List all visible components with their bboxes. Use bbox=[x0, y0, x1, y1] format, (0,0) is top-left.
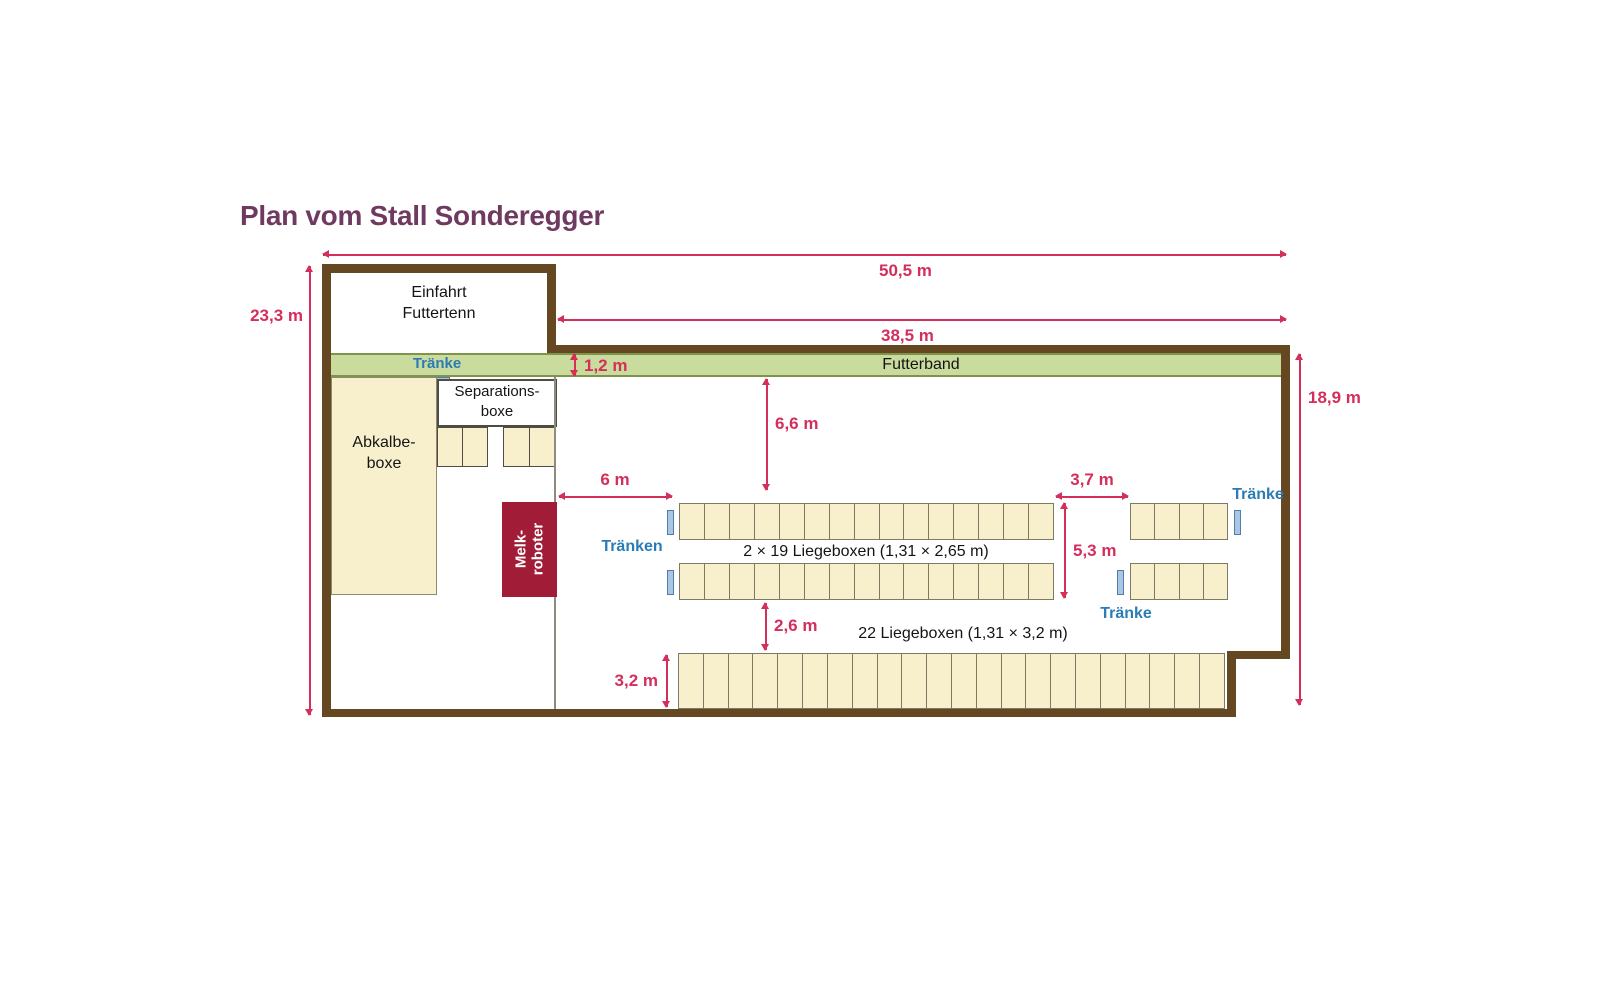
dim-label-left-gap: 6 m bbox=[565, 470, 665, 490]
liegeboxen-row-lower-right bbox=[1130, 563, 1228, 600]
melkroboter-label: Melk- roboter bbox=[503, 502, 557, 597]
dim-arrow-left-height bbox=[309, 266, 311, 715]
liegebox-cell bbox=[1029, 504, 1053, 539]
separationsboxe-label-line1: Separations- bbox=[437, 382, 557, 402]
liegebox-cell bbox=[1051, 654, 1076, 708]
liegebox-cell bbox=[1200, 654, 1224, 708]
liegebox-cell bbox=[1026, 654, 1051, 708]
melkroboter-room: Melk- roboter bbox=[502, 502, 557, 597]
wall-hall-top bbox=[547, 345, 1290, 353]
floor-plan: Plan vom Stall Sonderegger Futterband Tr… bbox=[0, 0, 1600, 984]
dim-label-row-gap: 5,3 m bbox=[1073, 541, 1116, 561]
liegebox-cell bbox=[805, 504, 830, 539]
liegebox-cell bbox=[753, 654, 778, 708]
page-title: Plan vom Stall Sonderegger bbox=[240, 200, 604, 232]
liegebox-cell bbox=[1204, 564, 1227, 599]
traenke-right-top-label: Tränke bbox=[1228, 486, 1288, 504]
liegebox-cell bbox=[803, 654, 828, 708]
liegebox-cell bbox=[1004, 564, 1029, 599]
dim-arrow-right-height bbox=[1299, 354, 1301, 705]
dim-label-lower-gap: 2,6 m bbox=[774, 616, 817, 636]
dim-arrow-left-gap bbox=[559, 496, 672, 498]
liegebox-cell bbox=[805, 564, 830, 599]
einfahrt-label-line1: Einfahrt bbox=[331, 282, 547, 303]
liegebox-cell bbox=[1029, 564, 1053, 599]
liegebox-cell bbox=[1101, 654, 1126, 708]
liegebox-cell bbox=[952, 654, 977, 708]
liegebox-cell bbox=[1131, 564, 1155, 599]
dim-arrow-band-height bbox=[574, 354, 576, 376]
traenke-right-bottom-label: Tränke bbox=[1096, 605, 1156, 623]
abkalbeboxe-label-line2: boxe bbox=[331, 453, 437, 474]
liegeboxen-row-upper-right bbox=[1130, 503, 1228, 540]
wall-left bbox=[322, 264, 331, 717]
liegebox-cell bbox=[778, 654, 803, 708]
liegebox-cell bbox=[705, 564, 730, 599]
liegebox-cell bbox=[1004, 504, 1029, 539]
wall-einfahrt-top bbox=[322, 264, 556, 273]
liegebox-cell bbox=[954, 504, 979, 539]
dim-label-bottom-depth: 3,2 m bbox=[558, 671, 658, 691]
dim-arrow-right-gap bbox=[1056, 496, 1128, 498]
liegebox-cell bbox=[954, 564, 979, 599]
liegebox-cell bbox=[1131, 504, 1155, 539]
dim-label-left-height: 23,3 m bbox=[203, 306, 303, 326]
liegebox-cell bbox=[680, 504, 705, 539]
liegebox-cell bbox=[830, 564, 855, 599]
einfahrt-label-line2: Futtertenn bbox=[331, 303, 547, 324]
liegebox-cell bbox=[828, 654, 853, 708]
liegebox-cell bbox=[1155, 564, 1179, 599]
wall-bottom bbox=[322, 709, 1236, 717]
wall-lower-right bbox=[1227, 651, 1236, 717]
liegebox-cell bbox=[1150, 654, 1175, 708]
liegebox-cell bbox=[977, 654, 1002, 708]
futterband-strip bbox=[331, 353, 1281, 377]
liegebox-cell bbox=[755, 564, 780, 599]
liegebox-cell bbox=[880, 504, 905, 539]
upper-rows-label: 2 × 19 Liegeboxen (1,31 × 2,65 m) bbox=[716, 543, 1016, 561]
abkalbeboxe-label: Abkalbe- boxe bbox=[331, 432, 437, 474]
dim-label-band-height: 1,2 m bbox=[584, 356, 627, 376]
liegebox-cell bbox=[755, 504, 780, 539]
liegebox-cell bbox=[729, 654, 754, 708]
separation-cells-group-a bbox=[437, 427, 488, 467]
liegebox-cell bbox=[902, 654, 927, 708]
liegebox-cell bbox=[1180, 564, 1204, 599]
abkalbeboxe-label-line1: Abkalbe- bbox=[331, 432, 437, 453]
dim-label-right-height: 18,9 m bbox=[1308, 388, 1361, 408]
traenken-label: Tränken bbox=[597, 538, 667, 556]
liegebox-cell bbox=[1204, 504, 1227, 539]
liegebox-cell bbox=[880, 564, 905, 599]
liegebox-cell bbox=[855, 564, 880, 599]
dim-arrow-total-width bbox=[323, 254, 1286, 256]
water-trough-upper-left bbox=[667, 510, 674, 535]
liegebox-cell bbox=[979, 564, 1004, 599]
liegebox-cell bbox=[730, 564, 755, 599]
liegebox-cell bbox=[1175, 654, 1200, 708]
liegebox-cell bbox=[878, 654, 903, 708]
liegebox-cell bbox=[855, 504, 880, 539]
liegebox-cell bbox=[927, 654, 952, 708]
dim-label-total-width: 50,5 m bbox=[879, 261, 932, 281]
liegebox-cell bbox=[1002, 654, 1027, 708]
dim-arrow-bottom-depth bbox=[666, 655, 668, 707]
liegebox-cell bbox=[904, 504, 929, 539]
separationsboxe-label-line2: boxe bbox=[437, 402, 557, 422]
wall-step bbox=[1227, 651, 1290, 659]
traenke-band-label: Tränke bbox=[402, 355, 472, 372]
dim-label-feed-alley: 6,6 m bbox=[775, 414, 818, 434]
dim-arrow-hall-width bbox=[558, 319, 1286, 321]
dim-arrow-feed-alley bbox=[766, 379, 768, 490]
liegebox-cell bbox=[730, 504, 755, 539]
liegebox-cell bbox=[929, 504, 954, 539]
liegeboxen-row-upper-left bbox=[679, 503, 1054, 540]
liegeboxen-row-bottom bbox=[678, 653, 1225, 709]
liegebox-cell bbox=[780, 564, 805, 599]
liegebox-cell bbox=[1180, 504, 1204, 539]
liegebox-cell bbox=[853, 654, 878, 708]
liegebox-cell bbox=[1076, 654, 1101, 708]
separation-cell bbox=[504, 428, 530, 466]
liegebox-cell bbox=[680, 564, 705, 599]
liegebox-cell bbox=[1126, 654, 1151, 708]
liegebox-cell bbox=[704, 654, 729, 708]
liegebox-cell bbox=[780, 504, 805, 539]
water-trough-upper-right bbox=[1234, 510, 1241, 535]
liegeboxen-row-lower-left bbox=[679, 563, 1054, 600]
separation-cell bbox=[463, 428, 487, 466]
futterband-label: Futterband bbox=[846, 356, 996, 374]
liegebox-cell bbox=[904, 564, 929, 599]
melkroboter-label-line2: roboter bbox=[530, 523, 547, 576]
water-trough-lower-left bbox=[667, 570, 674, 595]
liegebox-cell bbox=[1155, 504, 1179, 539]
dim-label-hall-width: 38,5 m bbox=[881, 326, 934, 346]
bottom-row-label: 22 Liegeboxen (1,31 × 3,2 m) bbox=[838, 625, 1088, 643]
liegebox-cell bbox=[705, 504, 730, 539]
einfahrt-label: Einfahrt Futtertenn bbox=[331, 282, 547, 324]
liegebox-cell bbox=[679, 654, 704, 708]
dim-label-right-gap: 3,7 m bbox=[1042, 470, 1142, 490]
separation-cell bbox=[530, 428, 555, 466]
separation-cells-group-b bbox=[503, 427, 555, 467]
melkroboter-label-line1: Melk- bbox=[513, 530, 530, 568]
water-trough-lower-right bbox=[1117, 570, 1124, 595]
wall-einfahrt-right bbox=[547, 264, 556, 353]
dim-arrow-lower-gap bbox=[765, 603, 767, 650]
dim-arrow-row-gap bbox=[1064, 503, 1066, 598]
separationsboxe-label: Separations- boxe bbox=[437, 382, 557, 422]
abkalbeboxe-room bbox=[331, 377, 437, 595]
liegebox-cell bbox=[830, 504, 855, 539]
liegebox-cell bbox=[979, 504, 1004, 539]
separation-cell bbox=[438, 428, 463, 466]
liegebox-cell bbox=[929, 564, 954, 599]
